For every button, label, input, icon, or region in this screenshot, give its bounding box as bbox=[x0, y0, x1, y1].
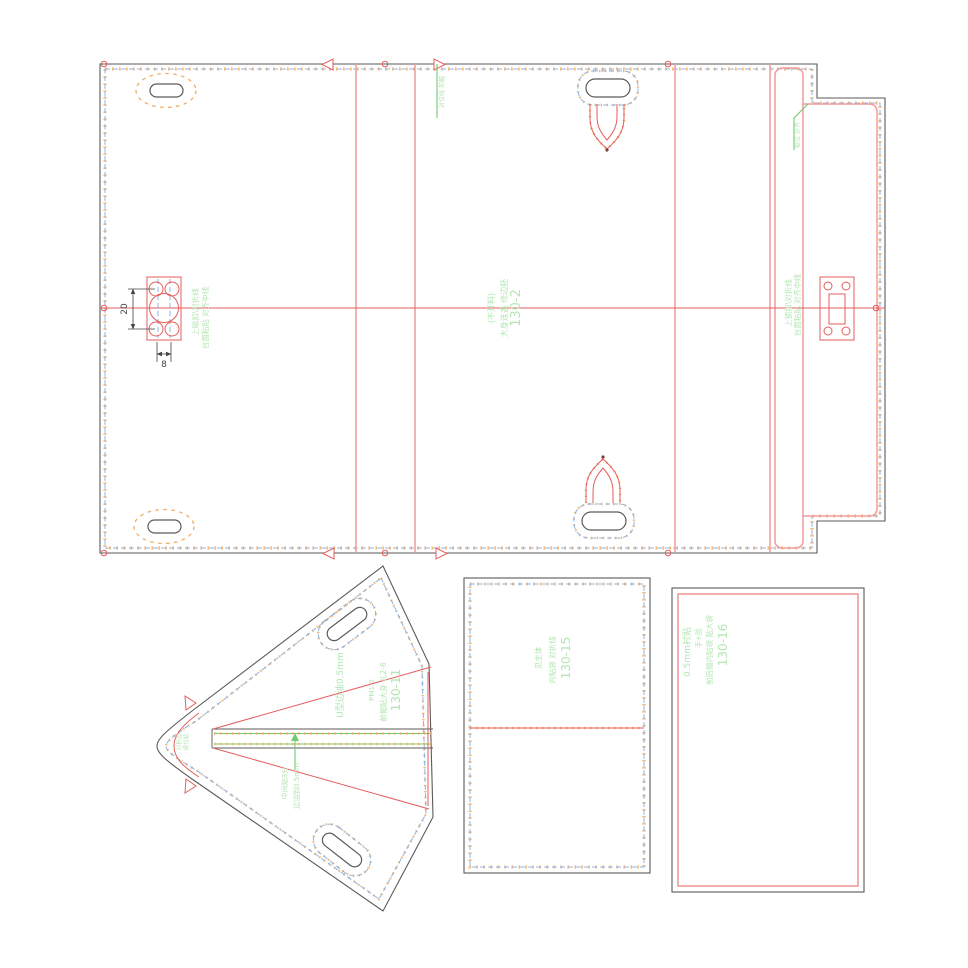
dim-label-20: 20 bbox=[120, 303, 130, 315]
tab-tip-dot bbox=[605, 148, 608, 151]
rivet-hole bbox=[842, 327, 850, 335]
magnet-note-b: 台面粘贴 对齐中线 bbox=[200, 286, 210, 349]
tab-sew-outer bbox=[586, 459, 620, 503]
tip-note-a: 对折边 bbox=[175, 733, 183, 750]
rivet-hole bbox=[842, 282, 850, 290]
notch-triangle bbox=[436, 548, 447, 559]
tab-tip-dot bbox=[601, 455, 604, 458]
tab-slot bbox=[582, 512, 626, 530]
strap-slot bbox=[320, 830, 365, 869]
pattern-svg: 20 8 对位线 前幅 贴位 对齐 130-2 大身连盖 修边胚 (不开料) 上… bbox=[0, 0, 968, 968]
band-note-a: 中间贴3分 bbox=[280, 767, 289, 799]
tab-tick-marks bbox=[590, 104, 624, 149]
flap-note: 贴位 对齐 bbox=[794, 122, 802, 148]
pocket-tick-marks bbox=[470, 584, 644, 867]
flap-edge-offset bbox=[803, 104, 877, 516]
lock-hole bbox=[829, 294, 845, 324]
tab-tick-marks bbox=[586, 459, 620, 503]
notch-triangle bbox=[322, 59, 333, 70]
gusset-pm-note: PM1.0 bbox=[368, 679, 376, 700]
notch-triangle bbox=[323, 548, 334, 559]
lining-note-b: 手+胶 bbox=[694, 628, 703, 648]
strap-slot-bottom-left bbox=[148, 520, 181, 533]
rivet-hole bbox=[824, 327, 832, 335]
piece-pocket[interactable]: 130-15 内贴袋 对折线 见主体 bbox=[464, 578, 650, 873]
lock-note-a: 上锁扣\对折线 bbox=[783, 279, 793, 327]
pocket-note-a: 内贴袋 对折线 bbox=[547, 636, 557, 684]
pocket-stitch-line bbox=[470, 584, 644, 867]
notch-triangle bbox=[185, 696, 196, 710]
tab-sew-inner bbox=[597, 104, 617, 140]
strap-slot-top-left bbox=[150, 84, 183, 97]
dim-label-8: 8 bbox=[161, 360, 167, 370]
belt-tab-bottom bbox=[574, 455, 634, 538]
rivet-hole bbox=[165, 322, 179, 336]
tab-sew-inner bbox=[593, 468, 613, 503]
rivet-hole bbox=[824, 282, 832, 290]
magnet-note-a: 上磁扣\对折线 bbox=[190, 288, 200, 336]
lock-note-b: 台面粘贴 对齐中线 bbox=[792, 273, 802, 336]
gusset-center-band bbox=[212, 729, 433, 770]
main-cut-note: (不开料) bbox=[486, 293, 496, 323]
pocket-note-b: 见主体 bbox=[533, 646, 543, 669]
pocket-part-number: 130-15 bbox=[559, 637, 573, 680]
lining-part-number: 130-16 bbox=[716, 624, 730, 667]
main-material-note: 大身连盖 修边胚 bbox=[499, 279, 509, 338]
pocket-cut-outline bbox=[464, 578, 650, 873]
notch-triangle bbox=[434, 59, 445, 70]
piece-gusset[interactable]: 130-11 前幅贴大身 扎2-6 PM1.0 U型边油0.5mm 中间贴3分 … bbox=[157, 566, 433, 911]
fan-line-lower bbox=[213, 748, 429, 809]
belt-tab-top bbox=[578, 71, 638, 152]
gusset-u-edge-note: U型边油0.5mm bbox=[334, 652, 346, 717]
gusset-attach-note: 前幅贴大身 扎2-6 bbox=[378, 662, 388, 722]
strap-slot bbox=[324, 605, 369, 644]
piece-lining[interactable]: 130-16 前后幅内贴袋 贴大袋 手+胶 0.5mm衬贴 bbox=[672, 588, 864, 892]
band-note-b: 边油到0.5mm bbox=[292, 763, 301, 809]
main-part-number: 130-2 bbox=[509, 289, 524, 327]
lining-note-a: 前后幅内贴袋 贴大袋 bbox=[704, 615, 714, 685]
magnet-plate-left: 20 8 bbox=[120, 277, 181, 370]
gusset-part-number: 130-11 bbox=[389, 669, 403, 712]
tip-note-b: 按位粘 bbox=[182, 733, 190, 750]
top-edge-note: 对位线 前幅 bbox=[438, 76, 446, 108]
piece-main-body[interactable]: 20 8 对位线 前幅 贴位 对齐 130-2 大身连盖 修边胚 (不开料) 上… bbox=[100, 59, 885, 559]
tab-sew-outer bbox=[590, 104, 624, 149]
lining-note-c: 0.5mm衬贴 bbox=[681, 627, 693, 677]
pattern-drawing-canvas: 20 8 对位线 前幅 贴位 对齐 130-2 大身连盖 修边胚 (不开料) 上… bbox=[0, 0, 968, 968]
tab-slot bbox=[586, 79, 630, 97]
